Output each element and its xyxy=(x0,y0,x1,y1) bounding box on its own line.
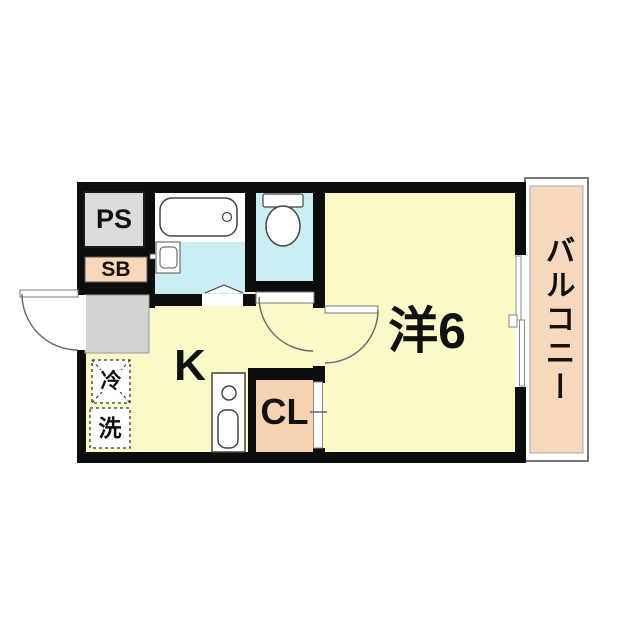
pipe-space-box xyxy=(84,192,144,247)
room-door-leaf xyxy=(325,306,378,313)
window-latch-icon xyxy=(509,315,517,327)
wall-bottom xyxy=(77,452,526,463)
balcony-deck xyxy=(530,186,583,453)
kitchen-sink-icon xyxy=(218,410,238,448)
bathroom-door-opening xyxy=(202,294,243,306)
wall-cl-right-bottom xyxy=(313,448,325,463)
wall-cl-top xyxy=(248,368,325,380)
wall-ps-sb xyxy=(77,247,150,257)
entrance-floor xyxy=(85,295,149,353)
toilet-tank-icon xyxy=(263,194,303,207)
kitchen-burner-icon xyxy=(222,386,236,400)
refrigerator-label-bg xyxy=(100,370,122,392)
closet-door-panel xyxy=(314,382,323,448)
wall-right-upper xyxy=(515,182,526,255)
window-pane-lower xyxy=(520,320,525,386)
balcony-area xyxy=(525,178,588,461)
floor-plan: PS SB K CL 洋6 冷 洗 バルコニー xyxy=(0,0,640,640)
wall-sb-entry xyxy=(77,282,155,295)
entrance-door-leaf xyxy=(20,290,78,297)
toilet-door-leaf xyxy=(256,292,314,303)
toilet-bowl-icon xyxy=(266,206,300,246)
wall-hall-room xyxy=(313,182,325,308)
bathtub-drain-icon xyxy=(223,213,232,222)
wall-bath-toilet xyxy=(245,182,256,292)
entrance-opening xyxy=(77,295,86,350)
closet-box xyxy=(256,380,313,452)
window-pane-upper xyxy=(516,256,521,320)
washer-slot xyxy=(90,408,130,448)
floor-plan-drawing xyxy=(0,0,640,640)
wall-cl-left xyxy=(248,380,256,463)
wall-right-lower xyxy=(515,387,526,463)
shoe-box xyxy=(85,257,147,282)
entrance-door-swing-arc xyxy=(22,294,78,350)
washbasin-tap-icon xyxy=(150,254,156,259)
